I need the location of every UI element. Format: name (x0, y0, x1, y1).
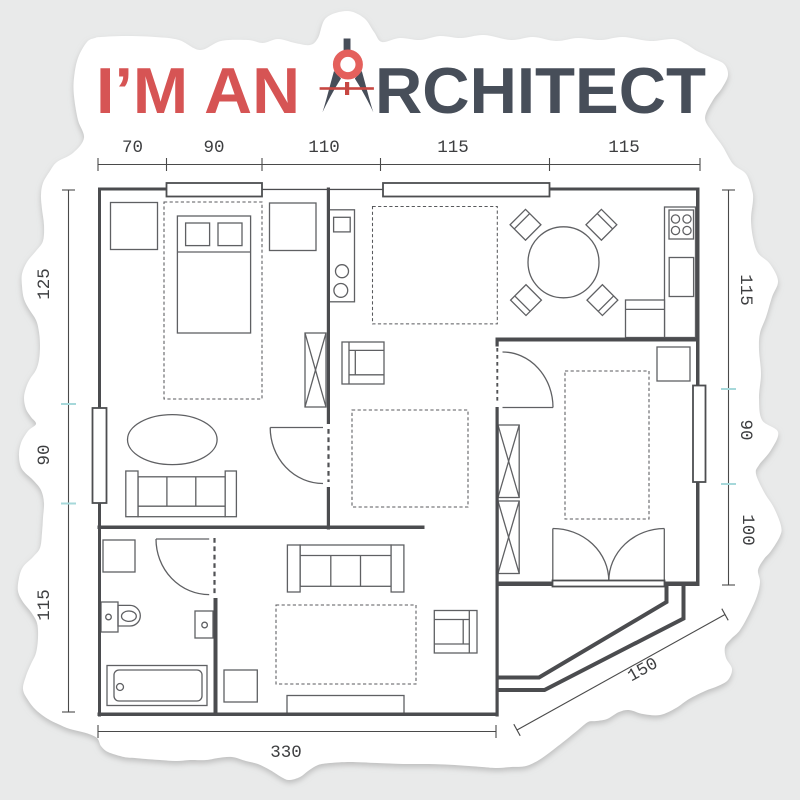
svg-text:90: 90 (735, 419, 755, 440)
svg-text:110: 110 (308, 138, 340, 158)
svg-text:330: 330 (270, 743, 302, 763)
svg-text:90: 90 (35, 444, 55, 465)
svg-text:125: 125 (35, 268, 55, 300)
svg-text:100: 100 (737, 514, 757, 546)
svg-text:I’M AN: I’M AN (96, 54, 300, 127)
svg-text:RCHITECT: RCHITECT (375, 54, 706, 127)
svg-text:115: 115 (608, 138, 640, 158)
svg-text:70: 70 (122, 138, 143, 158)
svg-text:90: 90 (203, 138, 224, 158)
svg-text:115: 115 (735, 274, 755, 306)
svg-text:115: 115 (437, 138, 469, 158)
svg-text:115: 115 (35, 589, 55, 621)
